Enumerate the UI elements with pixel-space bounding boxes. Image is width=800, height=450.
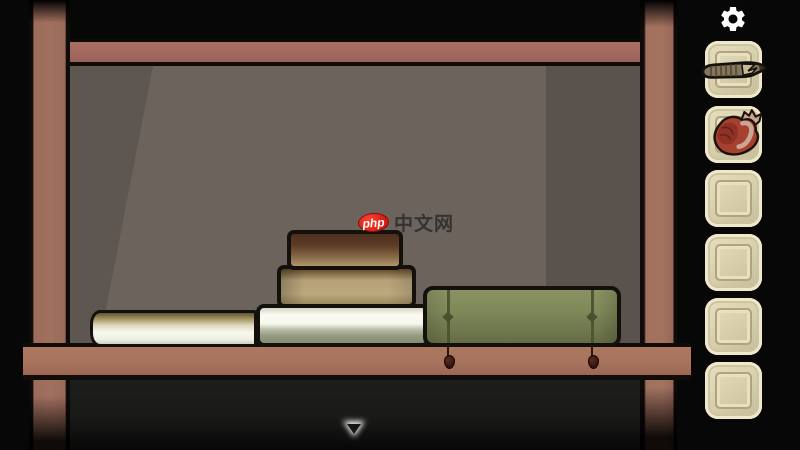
cigar-icon xyxy=(698,57,771,83)
inventory-slot-4[interactable] xyxy=(705,234,762,291)
green-strapped-book[interactable] xyxy=(423,286,621,347)
inventory-slot-1[interactable] xyxy=(705,41,762,98)
strap-bead xyxy=(587,345,597,369)
strap-bead xyxy=(443,345,453,369)
game-screen: php 中文网 xyxy=(0,0,800,450)
strap-knot xyxy=(586,311,597,322)
watermark-text: 中文网 xyxy=(394,209,454,236)
inventory-slot-5[interactable] xyxy=(705,298,762,355)
shelf-right-post xyxy=(640,0,677,450)
site-watermark: php 中文网 xyxy=(358,209,454,236)
shelf-left-post xyxy=(29,0,70,450)
strap-knot xyxy=(442,311,453,322)
navigate-down-button[interactable] xyxy=(338,413,370,445)
inventory-slot-6[interactable] xyxy=(705,362,762,419)
white-book-left[interactable] xyxy=(90,310,257,347)
gear-icon xyxy=(718,21,748,38)
inventory-slot-2[interactable] xyxy=(705,106,762,163)
brown-book-stack-top[interactable] xyxy=(287,230,403,270)
down-arrow-icon xyxy=(347,424,361,434)
shelf-top-rail xyxy=(67,39,641,66)
tan-book-stack-middle[interactable] xyxy=(277,265,416,308)
heart-icon xyxy=(705,106,765,163)
inventory-sidebar xyxy=(690,0,800,450)
white-book-stack-bottom[interactable] xyxy=(256,304,430,347)
inventory-slot-3[interactable] xyxy=(705,170,762,227)
settings-button[interactable] xyxy=(718,4,748,34)
php-logo-badge: php xyxy=(357,212,389,233)
